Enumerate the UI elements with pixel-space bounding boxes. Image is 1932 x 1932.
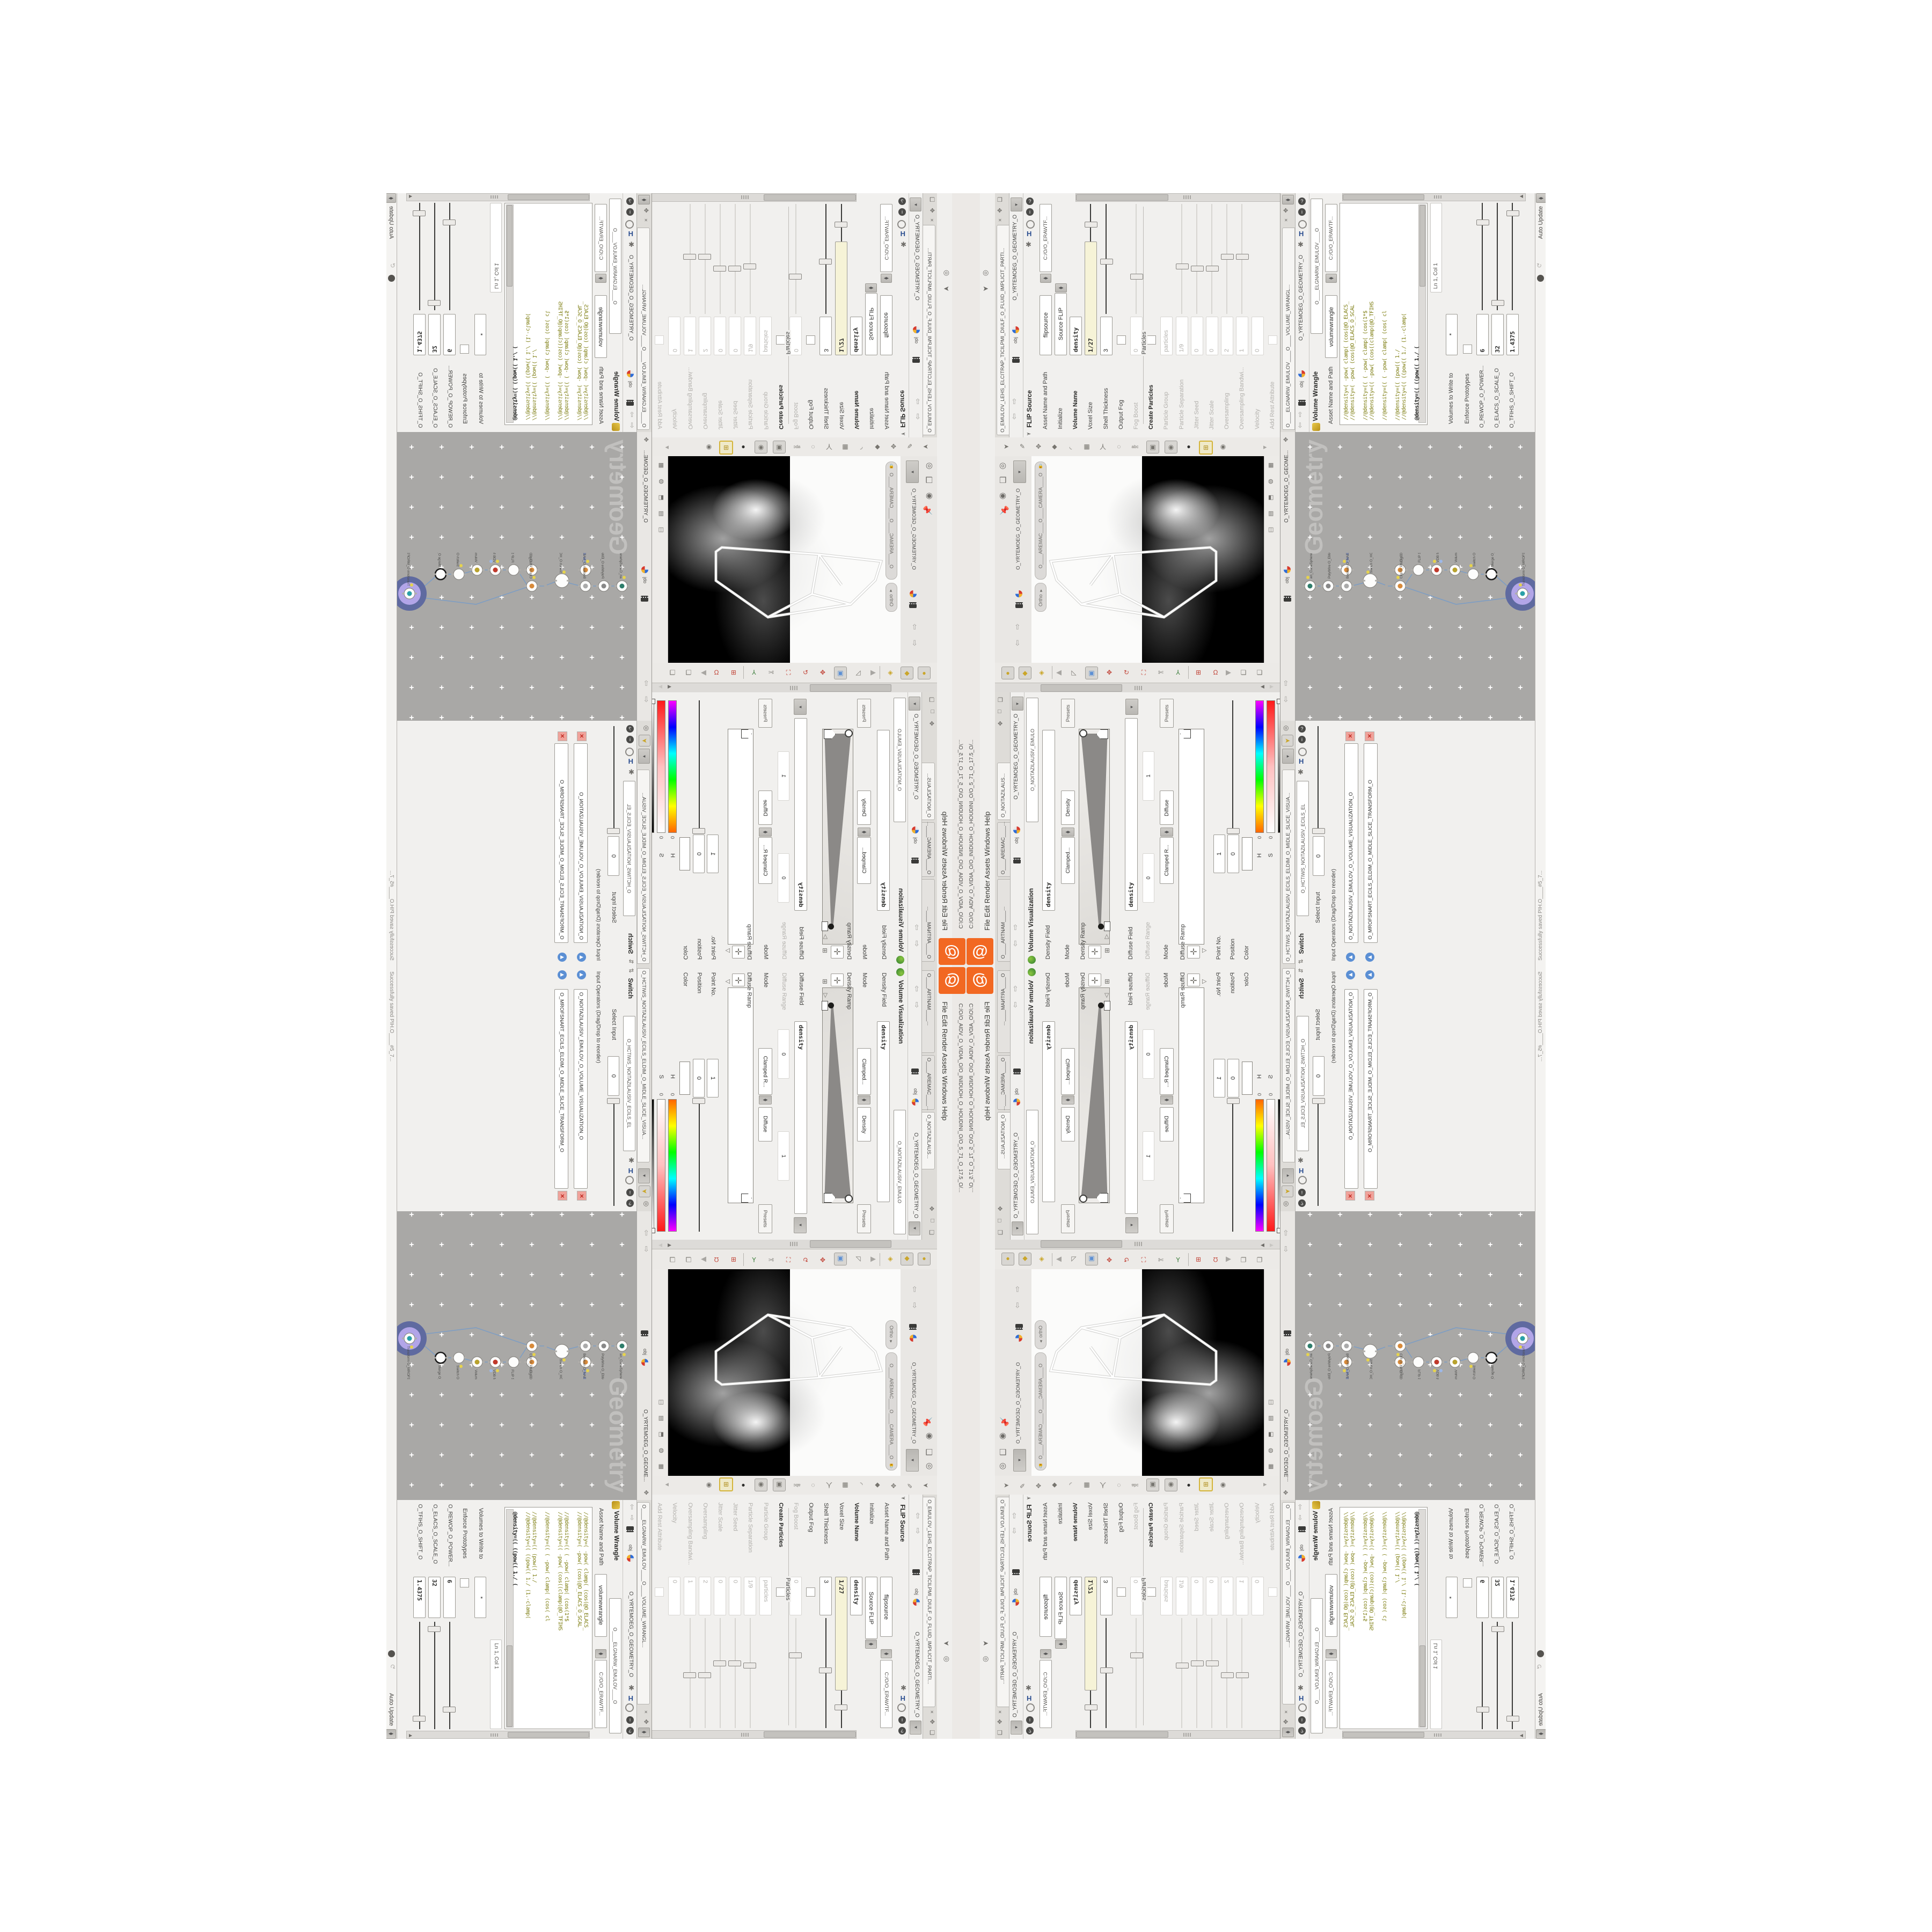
ramp-add-button[interactable]: ✛ (1088, 946, 1101, 958)
node-label[interactable]: FLIP Source O_EMULOV_PILF_O (510, 553, 514, 562)
flip-scrollbar[interactable] (1075, 1730, 1281, 1739)
flip-asset-path-field[interactable]: C:/O/O_ERAWTF... (1040, 1660, 1052, 1728)
pointer-icon[interactable]: ➤ (943, 284, 949, 293)
param-field[interactable]: 3 (819, 1577, 832, 1615)
nav-down-icon[interactable]: ⇩ (1014, 1284, 1021, 1293)
node-label[interactable]: Switch O_HCTIWS_YRTEMOEG_O (559, 553, 562, 573)
nav-up-icon[interactable]: ⇧ (911, 623, 918, 632)
update-mode-icon[interactable] (1537, 1650, 1544, 1657)
bullseye-icon[interactable]: ◎ (643, 724, 649, 731)
ramp-x-icon[interactable]: ✕ (1080, 979, 1084, 985)
auto-update-button[interactable]: Auto Update (388, 206, 394, 239)
ramp-pentagon-handle[interactable] (741, 1194, 752, 1203)
checker-icon[interactable]: ▦ (839, 441, 851, 452)
fwd-arrow-icon[interactable]: ▶ (1226, 668, 1231, 677)
position-slider[interactable] (699, 700, 700, 829)
search-icon[interactable] (625, 1703, 634, 1712)
nav-down-icon[interactable]: ⇩ (911, 1284, 918, 1293)
falloff-curve-icon[interactable]: ◟ (1065, 441, 1077, 452)
wrangle-scrollbar[interactable]: ◀ (406, 1731, 590, 1739)
switch-pane-tab[interactable]: O_HCTIWS_NOITAZILAUSIV_ECILS_ELDIM_O_MID… (637, 968, 650, 1162)
diffuse-ramp-widget[interactable] (728, 729, 753, 945)
select-input-field[interactable]: 0 (608, 836, 619, 876)
circle-tool-icon[interactable]: ◌ (807, 1480, 819, 1491)
help-icon[interactable]: ? (1026, 197, 1034, 205)
node-label[interactable]: Boolean O_NAELOOB_O (1346, 1353, 1350, 1379)
nav-down-icon[interactable]: ⇩ (629, 1502, 635, 1511)
lasso-icon[interactable]: ✎ (904, 1480, 916, 1491)
viz-scrollbar[interactable]: ◀ ▶ (995, 1239, 1280, 1249)
handles-icon[interactable]: ✥ (888, 441, 899, 452)
param-field[interactable]: 1.4375 (1506, 1577, 1519, 1618)
param-field[interactable]: 6 (1476, 314, 1489, 355)
handles-icon[interactable]: ✥ (1033, 1480, 1044, 1491)
houdini-h-icon[interactable]: H (901, 230, 905, 238)
param-field[interactable]: 0 (714, 317, 726, 355)
select-arrow-icon[interactable]: ➤ (1000, 1480, 1012, 1491)
param-slider[interactable] (720, 1618, 721, 1728)
tripod-icon[interactable]: 人 (823, 441, 835, 452)
pointer-icon[interactable]: ➤ (983, 284, 989, 293)
switch-pane-tab[interactable]: O_HCTIWS_NOITAZILAUSIV_ECILS_ELDIM_O_MID… (637, 770, 650, 964)
ramp-marker[interactable] (1104, 1001, 1110, 1011)
nav-down-icon[interactable]: ⇩ (1297, 421, 1303, 430)
gizmo-scale-icon[interactable]: ⛶ (1138, 667, 1150, 678)
pin-icon[interactable]: 📌 (999, 1417, 1009, 1426)
input-source-icon[interactable]: ◀ (577, 970, 586, 979)
ramp-point-start[interactable] (1079, 1195, 1087, 1203)
close-icon[interactable]: ✕ (998, 1709, 1002, 1714)
magnet-icon[interactable]: Ω (1210, 1254, 1221, 1265)
param-field[interactable]: 3 (819, 317, 832, 355)
node-label[interactable]: Volume Rasterize O_EZIRETSAR_O (474, 1370, 478, 1379)
nav-up-icon[interactable]: ⇧ (643, 1244, 649, 1253)
param-field[interactable]: 1/27 (1085, 1577, 1097, 1690)
node-label[interactable]: Merge O_EGREM_O (437, 553, 441, 567)
vp-opt-icon-2[interactable]: ◍ (658, 1447, 664, 1454)
position-field[interactable]: 0 (1227, 1059, 1239, 1097)
vex-code-editor[interactable]: //@density=( -pow( clamp( (cos(@O_ELACS_… (1340, 203, 1428, 425)
houdini-h-icon[interactable]: H (1299, 757, 1304, 765)
density-field-value[interactable]: density (877, 730, 890, 911)
gizmo-rotate-icon[interactable]: ↻ (1121, 667, 1132, 678)
help-icon[interactable]: ? (626, 197, 634, 205)
nav-up-icon[interactable]: ⇧ (629, 411, 635, 419)
viz-tab-camera[interactable]: O____AREMAC____... (997, 1055, 1011, 1110)
viewport-mini-tab[interactable]: ▶ (1013, 460, 1026, 483)
pane-split-icon[interactable]: ✥ (930, 1205, 934, 1212)
param-slider[interactable] (1106, 204, 1107, 314)
param-field[interactable]: 1 (1236, 317, 1248, 355)
flip-scrollbar[interactable] (651, 193, 857, 202)
pointer-select-icon[interactable]: ➤ (1282, 735, 1293, 747)
nav-down-icon[interactable]: ⇩ (1012, 939, 1019, 948)
info-icon[interactable]: i (1298, 1189, 1306, 1196)
falloff-curve-icon[interactable]: ◟ (1065, 1480, 1077, 1491)
position-slider[interactable] (1232, 700, 1233, 829)
density-ramp-widget[interactable] (1079, 729, 1110, 945)
back-arrow-icon[interactable]: ◀ (870, 1255, 876, 1264)
spinner-cap[interactable]: ◀▶ (595, 1649, 606, 1658)
nav-down-icon[interactable]: ⇩ (1283, 695, 1289, 704)
node-label[interactable]: Merge O_EGREM_O (437, 1365, 441, 1379)
wrangle-asset-path-field[interactable]: C:/O/O_ERAWTF... (595, 1660, 607, 1728)
pointer-icon[interactable]: ➤ (983, 1639, 989, 1648)
vex-code-editor[interactable]: //@density=( -pow( clamp( (cos(@O_ELACS_… (1340, 1507, 1428, 1729)
menu-items[interactable]: File Edit Render Assets Windows Help (941, 811, 949, 931)
magnet-icon[interactable]: Ω (711, 1254, 722, 1265)
pane-split-icon[interactable]: ✥ (997, 207, 1002, 214)
hue-gradient-slider[interactable] (1255, 700, 1264, 833)
switch-item-2[interactable]: O_MROFSNART_ECILS_ELDIM_O_MIDLE_SLICE_TR… (1361, 966, 1379, 1211)
param-slider[interactable] (1226, 1618, 1227, 1728)
search-icon[interactable] (625, 1176, 634, 1184)
mode2-extra-dropdown[interactable]: Diffuse (1160, 791, 1174, 825)
viz-tab-visualization[interactable]: O_NOITAZILAUS... (997, 1112, 1011, 1169)
info-icon[interactable]: i (626, 1189, 634, 1196)
param-slider[interactable] (1211, 1618, 1212, 1728)
nav-up-icon[interactable]: ⇧ (1283, 679, 1289, 688)
bullseye-icon[interactable]: ◎ (983, 268, 989, 277)
scroll-right-icon[interactable]: ▶ (658, 684, 662, 690)
volumes-field[interactable]: * (1446, 1577, 1458, 1618)
camera-lock-icon[interactable]: ◉ (1165, 441, 1177, 453)
ramp-marker[interactable] (1104, 921, 1110, 931)
param-field[interactable]: 0 (1206, 317, 1218, 355)
handles-icon[interactable]: ✥ (1033, 441, 1044, 452)
breadcrumb-path[interactable]: O_YRTEMOEG_O_GEOMETRY_O (1013, 714, 1019, 800)
breadcrumb-path[interactable]: O_YRTEMOEG_O_GEOMETRY_O (1013, 1132, 1019, 1218)
collapse-cap[interactable]: ◀▶ (386, 193, 396, 203)
diffuse-ramp-widget[interactable] (1179, 987, 1204, 1203)
gear-icon[interactable]: ✱ (1298, 1683, 1304, 1692)
search-icon[interactable] (897, 1703, 906, 1712)
volumes-field[interactable]: * (1446, 314, 1458, 355)
ramp-tri-icon[interactable]: ▷ (726, 978, 730, 985)
param-field[interactable]: 6 (443, 314, 456, 355)
density-field-value[interactable]: density (1042, 730, 1055, 911)
pointer-select-icon[interactable]: ➤ (639, 735, 650, 747)
camera-name-pill[interactable]: 🔒 O____AREMAC____O____CAMERA____O (1035, 462, 1046, 580)
pane-max-icon[interactable]: □ (998, 1217, 1001, 1224)
houdini-h-icon[interactable]: H (1027, 230, 1031, 238)
param-field[interactable]: particles (759, 1577, 772, 1615)
wrangle-pane-tab[interactable]: O____ELGNARW_EMULOV____O____VOLUME_WRANG… (637, 1502, 650, 1704)
network-breadcrumb[interactable]: O_YRTEMOEG_O_GEOME... (642, 450, 648, 523)
dark-sphere-icon[interactable]: ● (737, 1480, 749, 1491)
flip-pane-tab[interactable]: O_EMULOV_LEHS_ELCITRAP_TICILPMI_DIULF_O_… (923, 1497, 935, 1707)
switch-item-1[interactable]: O_NOITAZILAUSIV_EMULOV_O_VOLUME_VISUALIZ… (572, 721, 590, 966)
shade-smooth-icon[interactable]: ● (918, 1253, 931, 1265)
nav-up-icon[interactable]: ⇧ (643, 679, 649, 688)
param-field[interactable]: 0 (1191, 1577, 1203, 1615)
ramp-add-button[interactable]: ✛ (831, 946, 844, 958)
mode2-extra-dropdown[interactable]: Diffuse (758, 791, 772, 825)
pane-mini-tab[interactable]: ▶ (638, 1168, 650, 1183)
eye-icon[interactable]: ◉ (703, 441, 715, 452)
houdini-h-icon[interactable]: H (901, 1694, 905, 1702)
scroll-left-icon[interactable]: ◀ (1520, 194, 1523, 199)
move-icon[interactable]: ◆ (1049, 441, 1060, 452)
dropdown-cap[interactable]: ◀▶ (1160, 828, 1173, 837)
pane-split-icon[interactable]: ✥ (1283, 436, 1288, 443)
shade-flat-icon[interactable]: ◆ (901, 1253, 913, 1265)
param-field[interactable]: 1/9 (744, 1577, 756, 1615)
bullseye-icon[interactable]: ◎ (983, 1655, 989, 1664)
diffuse-range-min[interactable]: 0 (1143, 1029, 1154, 1079)
bullseye-icon[interactable]: ◎ (643, 1201, 649, 1208)
param-field[interactable]: 2 (1221, 317, 1233, 355)
switch-title-tab-field[interactable]: O_HCTIWS_NOITAZILAUSIV_ECILS_EL (1297, 781, 1309, 916)
param-slider[interactable] (1106, 1618, 1107, 1728)
vp-opt-icon-4[interactable]: ▥ (658, 510, 664, 517)
param-field[interactable]: particles (759, 317, 772, 355)
snap-grid-icon[interactable]: ⊞ (1192, 667, 1204, 678)
fwd-arrow-icon[interactable]: ▶ (1226, 1255, 1231, 1264)
node-label[interactable]: Switch O_HCTIWS_LANRETNI_O (456, 1365, 459, 1379)
window-restore-icon[interactable]: ❐ (929, 697, 934, 704)
param-slider[interactable] (750, 204, 751, 314)
nav-up-icon[interactable]: ⇧ (1014, 1300, 1021, 1309)
help-icon[interactable]: ? (898, 197, 906, 205)
scroll-left-icon[interactable]: ◀ (1261, 1242, 1264, 1248)
select-input-slider[interactable] (1318, 726, 1319, 831)
param-slider[interactable] (825, 204, 826, 314)
breadcrumb-root[interactable]: obj (914, 1589, 919, 1595)
param-field[interactable]: 0 (714, 1577, 726, 1615)
vp-opt-icon-5[interactable]: ◫ (1268, 1399, 1274, 1406)
param-field[interactable]: 1/9 (1176, 1577, 1188, 1615)
param-field[interactable]: particles (1160, 1577, 1173, 1615)
shade-flat-icon[interactable]: ◆ (1019, 1253, 1031, 1265)
vp-opt-icon-4[interactable]: ▥ (1268, 510, 1274, 517)
move-icon[interactable]: ◆ (1049, 1480, 1060, 1491)
param-dropdown[interactable]: Source FLIP (865, 1577, 877, 1639)
switch-item-1[interactable]: O_NOITAZILAUSIV_EMULOV_O_VOLUME_VISUALIZ… (1342, 721, 1360, 966)
switch-title-tab-field[interactable]: O_HCTIWS_NOITAZILAUSIV_ECILS_EL (1297, 1016, 1309, 1151)
param-field[interactable]: 1.4375 (413, 1577, 426, 1618)
density-field-value[interactable]: density (1042, 1021, 1055, 1202)
camera-view-icon[interactable]: ▣ (1085, 1253, 1098, 1265)
node-label[interactable]: Transform O_MROFSNART_ECILS_ELDIM_O (1522, 553, 1526, 586)
collapse-cap[interactable]: ◀▶ (1536, 193, 1546, 203)
hue-gradient-slider[interactable] (1255, 1099, 1264, 1232)
pane-split-icon[interactable]: ✥ (930, 720, 934, 727)
axis-tripod-icon[interactable]: ⅄ (1172, 1254, 1184, 1265)
breadcrumb-path[interactable]: O_YRTEMOEG_O_GEOMETRY_O (913, 714, 919, 800)
ramp-add-button[interactable]: ✛ (831, 974, 844, 986)
point-no-field[interactable]: 1 (707, 835, 719, 873)
param-field[interactable]: 6 (1476, 1577, 1489, 1618)
ramp-point-start[interactable] (845, 1195, 853, 1203)
gizmo-translate-icon[interactable]: ✥ (817, 1254, 829, 1265)
param-checkbox[interactable] (806, 1587, 815, 1597)
nav-up-icon[interactable]: ⇧ (1011, 397, 1018, 406)
point-no-field[interactable]: 1 (707, 1059, 719, 1097)
wrangle-asset-name-field[interactable]: volumewrangle (1325, 295, 1337, 358)
dropdown-cap[interactable]: ▶ (794, 1217, 807, 1233)
ortho-pill[interactable]: Ortho ▾ (1035, 1320, 1046, 1349)
node-label[interactable]: Switch O_HCTIWS_LANRETNI_O (1473, 1365, 1476, 1379)
flip-pane-tab[interactable]: O_EMULOV_LEHS_ELCITRAP_TICILPMI_DIULF_O_… (997, 1497, 1009, 1707)
view-target-icon[interactable]: ◉ (999, 491, 1006, 500)
scroll-left-icon[interactable]: ◀ (409, 194, 412, 199)
gear-icon[interactable]: ✱ (1026, 1683, 1031, 1692)
pane-max-icon[interactable]: □ (931, 708, 934, 715)
param-field[interactable]: 1/27 (1085, 241, 1097, 355)
nav-down-icon[interactable]: ⇩ (914, 412, 921, 421)
viz-scrollbar[interactable]: ◀ ▶ (995, 683, 1280, 693)
houdini-h-icon[interactable]: H (628, 757, 633, 765)
scroll-left-icon[interactable]: ◀ (1520, 1733, 1523, 1738)
shade-smooth-icon[interactable]: ● (918, 667, 931, 679)
param-slider[interactable] (1241, 1618, 1242, 1728)
mode2-dropdown[interactable]: Clamped R... (1160, 1048, 1174, 1095)
param-field[interactable]: 0 (1252, 1577, 1264, 1615)
node-label[interactable]: PolyWire O_EMARFERIW_NOGYLOP_O (601, 553, 604, 579)
network-grid[interactable]: Geometry an_CubeSphere O_EREHPS_EBUC_OPo… (397, 1211, 637, 1500)
ramp-tri-icon[interactable]: ▷ (726, 947, 730, 954)
pane-split-icon[interactable]: ✥ (1283, 207, 1288, 214)
back-arrow-icon[interactable]: ◀ (1056, 1255, 1062, 1264)
node-label[interactable]: an_CubeSphere O_EREHPS_EBUC_O (619, 1353, 623, 1379)
input-source-icon[interactable]: ◀ (558, 970, 567, 979)
ortho-pill[interactable]: Ortho ▾ (885, 583, 897, 612)
gear-icon[interactable]: ✱ (1298, 768, 1304, 777)
pane-split-icon[interactable]: ✥ (644, 207, 649, 214)
viz-tab-mantra[interactable]: O____ARTNAM____... (921, 970, 935, 1053)
param-slider[interactable] (825, 1618, 826, 1728)
viz-tab-mantra[interactable]: O____ARTNAM____... (921, 879, 935, 962)
flip-asset-name-field[interactable]: flipsource (1040, 295, 1052, 355)
diffuse-ramp-widget[interactable] (728, 987, 753, 1203)
viewport-mini-tab[interactable]: ▶ (906, 1449, 919, 1472)
mode1-extra-dropdown[interactable]: Density (1061, 791, 1075, 825)
density-ramp-widget[interactable] (1079, 987, 1110, 1203)
param-field[interactable]: particles (1160, 317, 1173, 355)
toolbar-more-icon[interactable]: ▸ (1263, 443, 1267, 451)
nav-down-icon[interactable]: ⇩ (1014, 639, 1021, 648)
view-target-icon[interactable]: ◉ (926, 491, 933, 500)
pane-split-icon[interactable]: ✥ (644, 436, 649, 443)
axis-tripod-icon[interactable]: ⅄ (748, 1254, 760, 1265)
node-label[interactable]: Switch O_HCTIWS_YRTEMOEG_O (1370, 553, 1373, 573)
switch-item-2[interactable]: O_MROFSNART_ECILS_ELDIM_O_MIDLE_SLICE_TR… (553, 966, 571, 1211)
param-slider[interactable] (795, 1618, 796, 1728)
spinner-cap[interactable]: ◀▶ (595, 274, 606, 283)
image-plane-icon[interactable]: ▣ (773, 1479, 786, 1491)
camera-view-icon[interactable]: ▣ (834, 667, 847, 679)
gear-icon[interactable]: ✱ (1298, 240, 1304, 249)
falloff-curve-icon[interactable]: ◟ (855, 1480, 867, 1491)
breadcrumb-root[interactable]: obj (642, 577, 648, 583)
diffuse-field-value[interactable]: density (794, 718, 807, 911)
param-field[interactable]: 1 (684, 1577, 696, 1615)
node-label[interactable]: Switch O_HCTIWS_LANRETNI_O (1473, 553, 1476, 567)
dropdown-cap[interactable]: ◀▶ (1160, 1095, 1173, 1104)
node-label[interactable]: Transform O_MROFSNART_ECILS_ELDIM_O (1522, 1346, 1526, 1379)
scissors-icon[interactable]: ✄ (1155, 1254, 1167, 1265)
delete-item-icon[interactable] (558, 731, 567, 741)
gizmo-translate-icon[interactable]: ✥ (1103, 667, 1115, 678)
switch-item-1[interactable]: O_NOITAZILAUSIV_EMULOV_O_VOLUME_VISUALIZ… (1342, 966, 1360, 1211)
position-field[interactable]: 0 (693, 1059, 705, 1097)
param-slider[interactable] (705, 204, 706, 314)
pane-max-icon[interactable]: □ (998, 708, 1001, 715)
page-icon-1[interactable]: ❏ (683, 667, 694, 678)
select-mode-icon[interactable]: ◺ (1068, 1254, 1080, 1265)
param-slider[interactable] (1136, 1618, 1137, 1728)
pane-split-icon[interactable]: ✥ (644, 1718, 649, 1725)
wrangle-asset-name-field[interactable]: volumewrangle (1325, 1574, 1337, 1637)
camera-view-icon[interactable]: ▣ (834, 1253, 847, 1265)
shade-smooth-icon[interactable]: ● (1001, 1253, 1014, 1265)
param-slider[interactable] (1241, 204, 1242, 314)
mode1-dropdown[interactable]: Clamped... (857, 1048, 871, 1095)
grid-quad-icon[interactable]: ⊞ (719, 1477, 733, 1491)
node-label[interactable]: Switch O_HCTIWS_LANRETNI_O (456, 553, 459, 567)
network-breadcrumb[interactable]: O_YRTEMOEG_O_GEOME... (642, 1409, 648, 1482)
houdini-h-icon[interactable]: H (628, 1694, 633, 1702)
viewport-pane-tab[interactable]: O_YRTEMOEG_O_GEOMETRY_O (911, 488, 917, 570)
presets-button-2[interactable]: Presets (758, 699, 772, 728)
fwd-arrow-icon[interactable]: ▶ (701, 668, 706, 677)
select-arrow-icon[interactable]: ➤ (920, 441, 932, 452)
param-slider[interactable] (1136, 204, 1137, 314)
snap-grid-icon[interactable]: ⊞ (728, 1254, 740, 1265)
param-field[interactable]: 0 (1252, 317, 1264, 355)
page-icon-1[interactable]: ❏ (1238, 1254, 1249, 1265)
tab-scroll-cap[interactable]: ◀▶ (1282, 195, 1294, 204)
help-icon[interactable]: ? (626, 1727, 634, 1735)
network-grid[interactable]: Geometry an_CubeSphere O_EREHPS_EBUC_OPo… (1295, 1211, 1535, 1500)
node-label[interactable]: Boolean O_NAELOOB_O (582, 1353, 586, 1379)
nav-up-icon[interactable]: ⇧ (1012, 1000, 1019, 1009)
color-swatch[interactable] (679, 1062, 690, 1095)
viz-tab-mantra[interactable]: O____ARTNAM____... (997, 879, 1011, 962)
mode2-dropdown[interactable]: Clamped R... (758, 837, 772, 884)
node-label[interactable]: Switch O_HCTIWS_YRTEMOEG_O (1370, 1359, 1373, 1379)
param-field[interactable]: 2 (699, 1577, 711, 1615)
nav-down-icon[interactable]: ⇩ (914, 1511, 921, 1520)
page-icon-2[interactable]: ❏ (1254, 667, 1265, 678)
menu-items[interactable]: File Edit Render Assets Windows Help (941, 1001, 949, 1121)
ortho-pill[interactable]: Ortho ▾ (1035, 583, 1046, 612)
pane-menu-button[interactable]: ▶ (910, 197, 921, 211)
pane-split-icon[interactable]: ✥ (1283, 1718, 1288, 1725)
magnet-icon[interactable]: Ω (711, 667, 722, 678)
param-slider[interactable] (1196, 1618, 1197, 1728)
diffuse-field-value[interactable]: density (1125, 1021, 1138, 1214)
info-icon[interactable]: i (626, 1716, 634, 1724)
select-arrow-icon[interactable]: ➤ (920, 1480, 932, 1491)
param-slider[interactable] (1497, 1622, 1498, 1729)
pin-icon[interactable]: 📌 (923, 506, 933, 515)
node-label[interactable]: Volume Rasterize O_EZIRETSAR_O (474, 553, 478, 562)
ramp-tri-icon[interactable]: △ (1104, 933, 1109, 940)
ramp-flip-icon[interactable]: ⊞ (822, 947, 828, 954)
ramp-add-button[interactable]: ✛ (732, 946, 745, 958)
ramp-add-button[interactable]: ✛ (1187, 946, 1200, 958)
vp-opt-icon-4[interactable]: ▥ (658, 1415, 664, 1422)
nav-up-icon[interactable]: ⇧ (1297, 1513, 1303, 1521)
scroll-left-icon[interactable]: ◀ (1261, 684, 1264, 690)
camera-view-icon[interactable]: ▣ (1085, 667, 1098, 679)
info-icon[interactable]: i (898, 1716, 906, 1724)
node-label[interactable]: Switch O_HCTIWS_YRTEMOEG_O (559, 1359, 562, 1379)
param-field[interactable]: 0 (729, 317, 741, 355)
color-swatch[interactable] (679, 837, 690, 870)
